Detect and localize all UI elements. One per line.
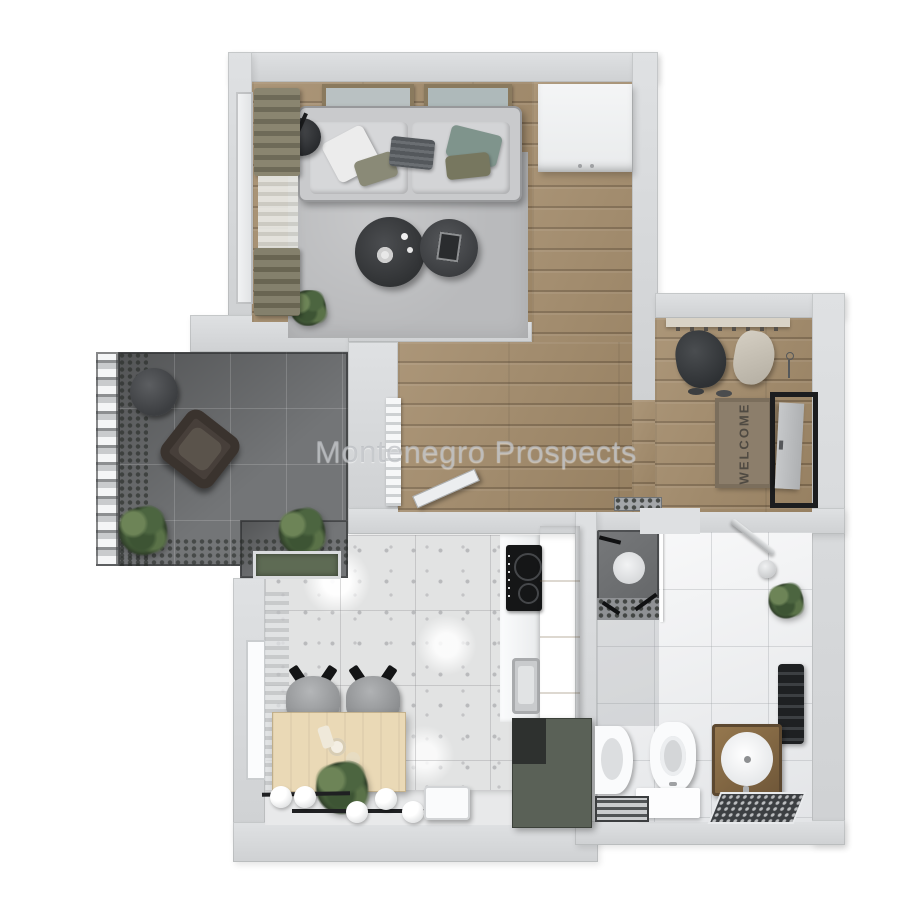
curtain-top	[254, 88, 300, 176]
induction-cooktop	[506, 545, 542, 611]
globe-light-3	[346, 801, 368, 823]
toilet-bowl	[660, 736, 686, 776]
welcome-mat-text: WELCOME	[737, 402, 752, 484]
wardrobe-handle-1	[578, 164, 582, 168]
coffee-table-cup-1	[401, 233, 408, 240]
green-island-cabinet	[512, 718, 592, 828]
coffee-table-bowl	[377, 247, 393, 263]
toilet-flush-button	[669, 782, 677, 786]
balcony-plant-right	[276, 506, 328, 558]
balcony-railing	[96, 352, 118, 566]
sink-basin	[518, 666, 534, 704]
cooktop-burner-large	[514, 553, 542, 581]
balcony-plant-left	[116, 504, 170, 558]
wardrobe-handle-2	[590, 164, 594, 168]
shower	[597, 530, 659, 620]
toilet	[650, 722, 696, 792]
tall-cream-cabinet	[540, 526, 580, 748]
wall-kitchen-bottom	[233, 822, 598, 862]
table-board	[317, 725, 335, 750]
cooktop-burner-small	[518, 583, 539, 604]
wall-living-top	[228, 52, 658, 82]
curtain-sheer	[258, 176, 298, 248]
striped-rug	[595, 796, 649, 822]
wall-bath-bottom	[575, 820, 845, 845]
globe-light-4	[375, 788, 397, 810]
watermark-text: Montenegro Prospects	[315, 434, 637, 470]
doorbell-stem	[788, 360, 790, 378]
vanity-sink	[712, 724, 782, 796]
bathroom-doorway-threshold	[640, 508, 700, 534]
coffee-table-large	[355, 217, 425, 287]
shower-head	[758, 560, 776, 578]
wall-right-outer	[812, 293, 845, 845]
floor-plan-render: WELCOME	[0, 0, 900, 900]
balcony-round-table	[130, 368, 178, 416]
doorbell-button	[786, 352, 794, 360]
globe-light-1	[270, 786, 292, 808]
living-window	[236, 92, 253, 304]
curtain-bottom	[254, 248, 300, 316]
dark-mosaic-mat	[710, 794, 803, 822]
cooktop-controls	[508, 555, 510, 599]
shower-handle-1	[599, 535, 621, 544]
coffee-table-book	[436, 232, 462, 263]
balcony-green-mat	[256, 554, 338, 576]
shower-drain	[613, 552, 645, 584]
vanity-drain	[744, 756, 751, 763]
shoe-1	[688, 388, 704, 395]
pillow-olive-dark	[445, 152, 491, 180]
step-stool	[424, 786, 470, 820]
green-cabinet-dark-section	[512, 718, 546, 764]
kitchen-sink	[512, 658, 540, 714]
coffee-table-cup-2	[407, 247, 413, 253]
coat-rack-rail	[666, 318, 790, 327]
door-handle	[779, 440, 783, 449]
bidet-basin	[601, 738, 623, 780]
shoe-2	[716, 390, 732, 397]
globe-light-5	[402, 801, 424, 823]
globe-light-2	[294, 786, 316, 808]
sofa	[298, 106, 522, 202]
pillow-striped-dark	[389, 136, 436, 170]
shower-glass-panel	[660, 530, 663, 622]
bathroom-gray-tile-column	[597, 618, 659, 726]
dining-chair-right	[346, 668, 400, 718]
coffee-table-small	[420, 219, 478, 277]
doorbell-panel-icon	[781, 352, 797, 380]
kitchen-window	[246, 640, 266, 780]
bathroom-plant	[766, 582, 806, 620]
white-wardrobe	[538, 84, 632, 172]
wicker-chair-cushion	[175, 425, 224, 474]
front-door-leaf	[775, 402, 804, 489]
bidet	[595, 726, 633, 794]
dining-chair-left	[286, 668, 340, 718]
welcome-mat: WELCOME	[715, 398, 773, 488]
